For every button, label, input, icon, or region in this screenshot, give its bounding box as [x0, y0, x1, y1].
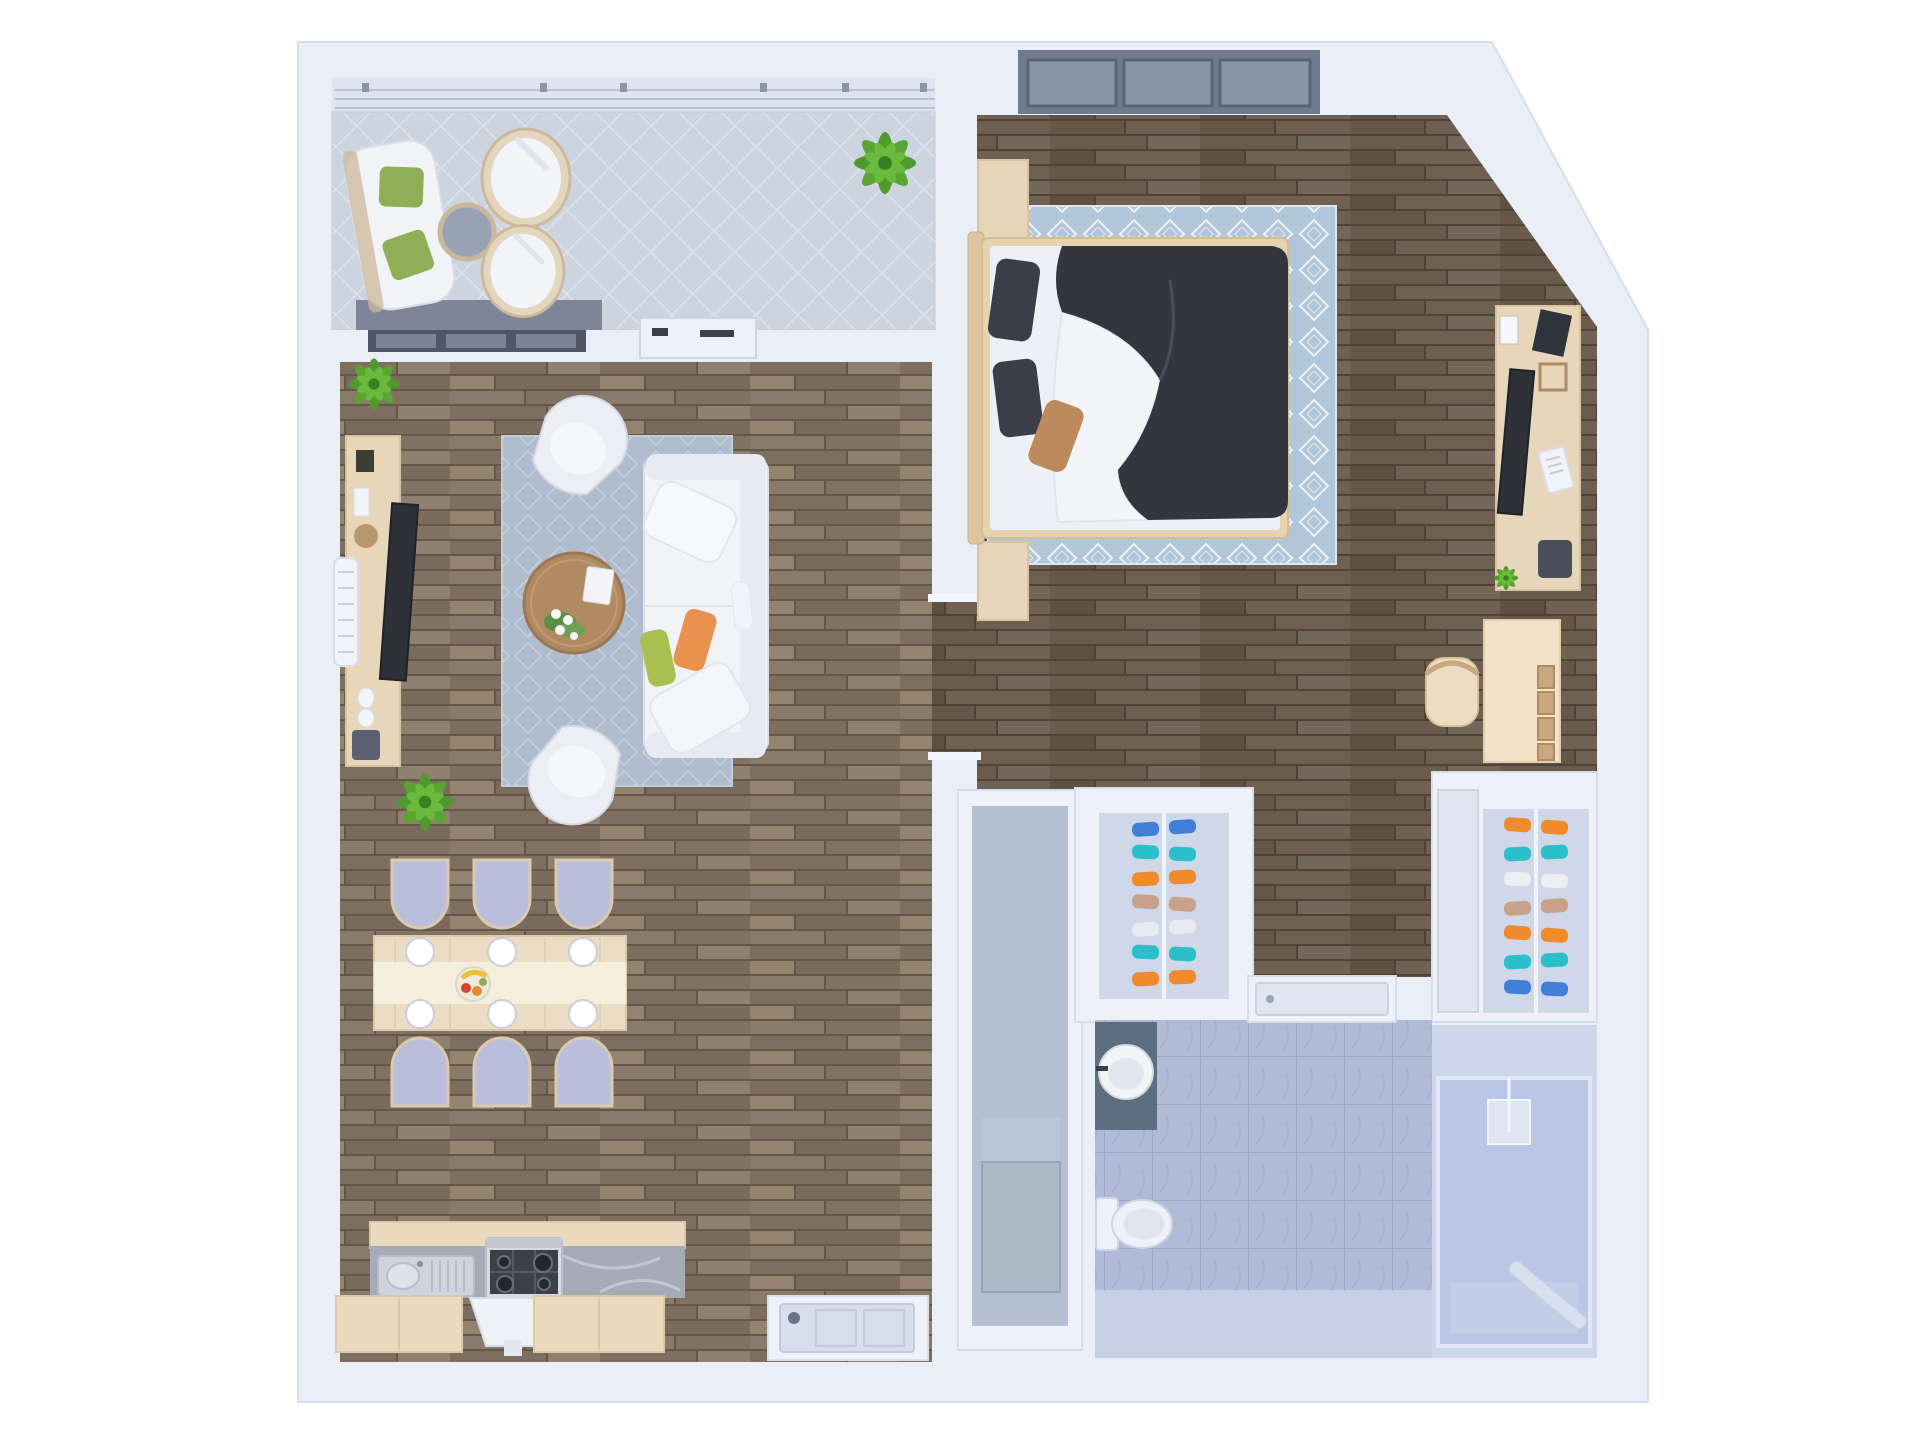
decor-frame [1500, 316, 1518, 344]
plant-icon [1494, 566, 1518, 590]
plant-icon [854, 132, 916, 194]
desk [1484, 620, 1560, 762]
desk-chair [1426, 658, 1478, 726]
front-door [768, 1296, 928, 1360]
closet-door-leaf [1438, 790, 1478, 1012]
door-leaf [780, 1304, 914, 1352]
bathroom [1095, 1020, 1432, 1358]
desk-cubbies [1538, 666, 1554, 760]
fruit-bowl [456, 967, 490, 1001]
decor-pot [356, 450, 374, 472]
decor-basket [354, 524, 378, 548]
bed [968, 232, 1288, 544]
coffee-table [524, 553, 624, 653]
radiator [334, 558, 358, 666]
bathroom-floor-light [1095, 1290, 1432, 1358]
bedroom-window [1018, 50, 1320, 114]
kitchen [336, 1222, 685, 1356]
utility-corridor [958, 790, 1082, 1350]
shoe-closet-hall [1075, 788, 1253, 1022]
door-handle [788, 1312, 800, 1324]
utility-appliance [982, 1162, 1060, 1292]
bedroom-doorway [928, 594, 981, 760]
decor-card [583, 566, 615, 604]
decor-vase [358, 709, 374, 727]
slider-panes [376, 334, 576, 348]
plant-icon [397, 774, 454, 831]
nightstand [978, 542, 1028, 620]
decor-books [354, 488, 369, 516]
decor-vase [358, 688, 374, 708]
shoe-closet-bedroom [1432, 772, 1597, 1022]
faucet [417, 1261, 423, 1267]
gas-stove [486, 1238, 562, 1298]
plant-icon [348, 358, 399, 409]
toilet [1096, 1198, 1172, 1250]
bedroom-dresser [1494, 306, 1580, 590]
dark-pillow [992, 358, 1045, 439]
closet-mullion [1162, 812, 1166, 1000]
floor-plan-render: 3D rendered top-view floor plan of a one… [0, 0, 1920, 1440]
kitchen-sink [378, 1256, 474, 1296]
door-leaf [1256, 983, 1388, 1015]
window-panes [1028, 60, 1310, 106]
living-window-sill [640, 318, 756, 358]
table-runner [374, 962, 626, 1004]
sofa [638, 454, 768, 758]
hood-duct [504, 1340, 522, 1356]
floor-plan-stage: 3D rendered top-view floor plan of a one… [0, 0, 1920, 1440]
dining-table [374, 936, 626, 1030]
closet-mullion [1534, 808, 1538, 1014]
door-handle [1266, 995, 1274, 1003]
bathroom-door [1248, 976, 1396, 1022]
shower-room [1432, 1025, 1597, 1358]
olive-pillow [379, 166, 424, 208]
nightstand [978, 160, 1028, 240]
wicker-chair [482, 225, 564, 316]
faucet [1096, 1066, 1108, 1071]
utility-shelf [982, 1118, 1060, 1162]
decor-speaker [1538, 540, 1572, 578]
vanity-sink [1095, 1022, 1157, 1130]
decor-speaker [352, 730, 380, 760]
wicker-chair [482, 129, 570, 227]
